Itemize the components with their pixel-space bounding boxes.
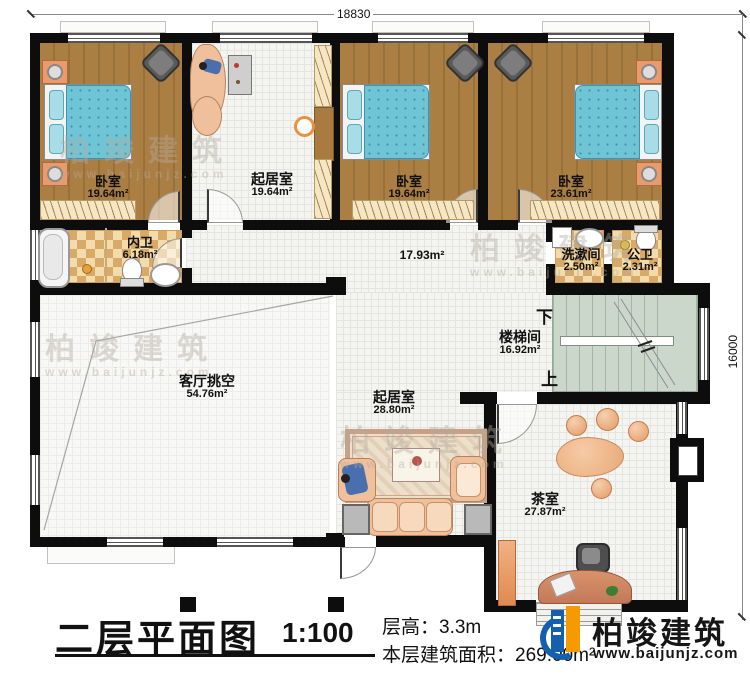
pillow bbox=[49, 90, 64, 120]
bed-blanket bbox=[575, 85, 640, 159]
desk-chair-seat bbox=[582, 548, 600, 564]
closet-mid bbox=[314, 107, 334, 161]
window-top-bedroom3 bbox=[548, 33, 644, 43]
room-label-washroom: 洗漱间2.50m² bbox=[561, 248, 600, 273]
room-label-corridor: 17.93m² bbox=[400, 249, 445, 262]
nightstand bbox=[636, 162, 662, 186]
stair-down-label: 下 bbox=[536, 303, 553, 328]
wall-bath-right bbox=[182, 225, 192, 238]
floorplan-canvas: 18830 16000 bbox=[0, 0, 750, 675]
dimension-line-right bbox=[742, 14, 743, 620]
pillow bbox=[644, 124, 659, 154]
door-balcony bbox=[340, 547, 376, 579]
stool bbox=[596, 408, 619, 431]
window-left-void-1 bbox=[30, 322, 40, 377]
wall-washroom-divider bbox=[604, 220, 612, 242]
room-label-toilet-public: 公卫2.31m² bbox=[623, 248, 658, 273]
bath-partition bbox=[105, 228, 107, 283]
wall-bottom-void bbox=[30, 537, 345, 547]
window-bottom-void-2 bbox=[217, 537, 293, 547]
window-sill bbox=[542, 21, 650, 33]
plan-scale: 1:100 bbox=[282, 617, 354, 649]
bathtub-inner bbox=[43, 234, 63, 280]
logo-window bbox=[553, 616, 561, 619]
wall-living2-bottom bbox=[376, 535, 490, 547]
window-tearoom-right-2 bbox=[677, 528, 687, 604]
brand-logo-icon bbox=[538, 604, 590, 670]
room-label-bedroom-1: 卧室19.64m² bbox=[88, 175, 129, 200]
pillow bbox=[347, 90, 362, 120]
logo-window bbox=[553, 624, 561, 627]
floor-drain bbox=[82, 264, 92, 274]
room-label-bedroom-2: 卧室19.64m² bbox=[389, 175, 430, 200]
cabinet bbox=[498, 540, 516, 606]
wall-right-upper bbox=[662, 33, 674, 295]
room-label-bathroom-inner: 内卫6.18m² bbox=[123, 236, 158, 261]
wardrobe bbox=[40, 200, 136, 220]
wardrobe bbox=[530, 200, 660, 220]
porch-outline bbox=[47, 547, 175, 564]
side-table bbox=[342, 504, 370, 535]
window-top-bedroom2 bbox=[378, 33, 468, 43]
room-label-bedroom-3: 卧室23.61m² bbox=[551, 175, 592, 200]
stair-handrail bbox=[560, 336, 674, 346]
logo-block-orange bbox=[566, 606, 580, 652]
desk-decor bbox=[236, 80, 240, 84]
sofa-seat bbox=[192, 96, 222, 136]
column-marker bbox=[328, 597, 344, 612]
nightstand bbox=[42, 162, 68, 186]
room-label-stairwell: 楼梯间16.92m² bbox=[499, 330, 541, 356]
nightstand bbox=[42, 60, 68, 84]
window-sill bbox=[60, 21, 166, 33]
person-head bbox=[341, 474, 350, 483]
sink bbox=[150, 263, 181, 287]
room-label-tearoom: 茶室27.87m² bbox=[525, 492, 566, 518]
stool bbox=[566, 415, 587, 436]
armchair-cushion bbox=[456, 463, 481, 497]
desk-decor bbox=[234, 63, 239, 68]
title-underline bbox=[55, 654, 375, 657]
wall-void-top bbox=[30, 283, 345, 295]
floor-void bbox=[40, 295, 330, 537]
column bbox=[326, 533, 344, 547]
person-head bbox=[199, 62, 207, 70]
sofa-cushion bbox=[372, 502, 398, 532]
column bbox=[326, 277, 346, 295]
pillow bbox=[49, 124, 64, 154]
bed-blanket bbox=[364, 85, 429, 159]
desk bbox=[228, 55, 252, 95]
sofa-cushion bbox=[426, 502, 452, 532]
window-stair-right bbox=[699, 308, 709, 380]
table-decor bbox=[412, 456, 422, 466]
stair-up-label: 上 bbox=[541, 365, 558, 390]
sofa-cushion bbox=[399, 502, 425, 532]
wall-stair-top bbox=[546, 283, 710, 295]
closet-bottom bbox=[314, 159, 332, 219]
floor-height-text: 层高：3.3m bbox=[382, 612, 481, 639]
logo-window bbox=[553, 632, 561, 635]
room-label-living-bottom: 起居室28.80m² bbox=[373, 390, 415, 416]
wall-row bbox=[243, 220, 450, 230]
washroom-sink bbox=[575, 228, 604, 249]
window-bottom-void-1 bbox=[107, 537, 163, 547]
toilet-tank bbox=[120, 278, 144, 287]
stool bbox=[591, 478, 612, 499]
ceiling-light bbox=[294, 116, 315, 137]
window-sill bbox=[372, 21, 474, 33]
toilet-tank bbox=[634, 225, 658, 233]
brand-url: www.baijunjz.com bbox=[593, 645, 738, 662]
dimension-top-label: 18830 bbox=[334, 7, 373, 21]
window-top-living bbox=[220, 33, 312, 43]
wall-bath-right bbox=[182, 268, 192, 283]
window-tearoom-right-1 bbox=[677, 402, 687, 434]
window-sill bbox=[212, 21, 318, 33]
nightstand bbox=[636, 60, 662, 84]
room-label-living-top: 起居室19.64m² bbox=[251, 172, 293, 198]
wall-row bbox=[478, 220, 518, 230]
wardrobe bbox=[352, 200, 474, 220]
dimension-right-label: 16000 bbox=[726, 332, 740, 371]
window-top-bedroom1 bbox=[68, 33, 160, 43]
window-left-void-2 bbox=[30, 455, 40, 505]
pillow bbox=[644, 90, 659, 120]
pillow bbox=[347, 124, 362, 154]
bed-blanket bbox=[66, 85, 131, 159]
closet-top bbox=[314, 45, 332, 107]
stool bbox=[628, 421, 649, 442]
washroom-counter bbox=[552, 227, 572, 248]
side-table bbox=[464, 504, 492, 535]
floor-corridor bbox=[186, 225, 546, 292]
dimension-line-top bbox=[30, 14, 745, 15]
bay-window-inner bbox=[678, 446, 698, 476]
room-label-void: 客厅挑空54.76m² bbox=[179, 374, 235, 400]
